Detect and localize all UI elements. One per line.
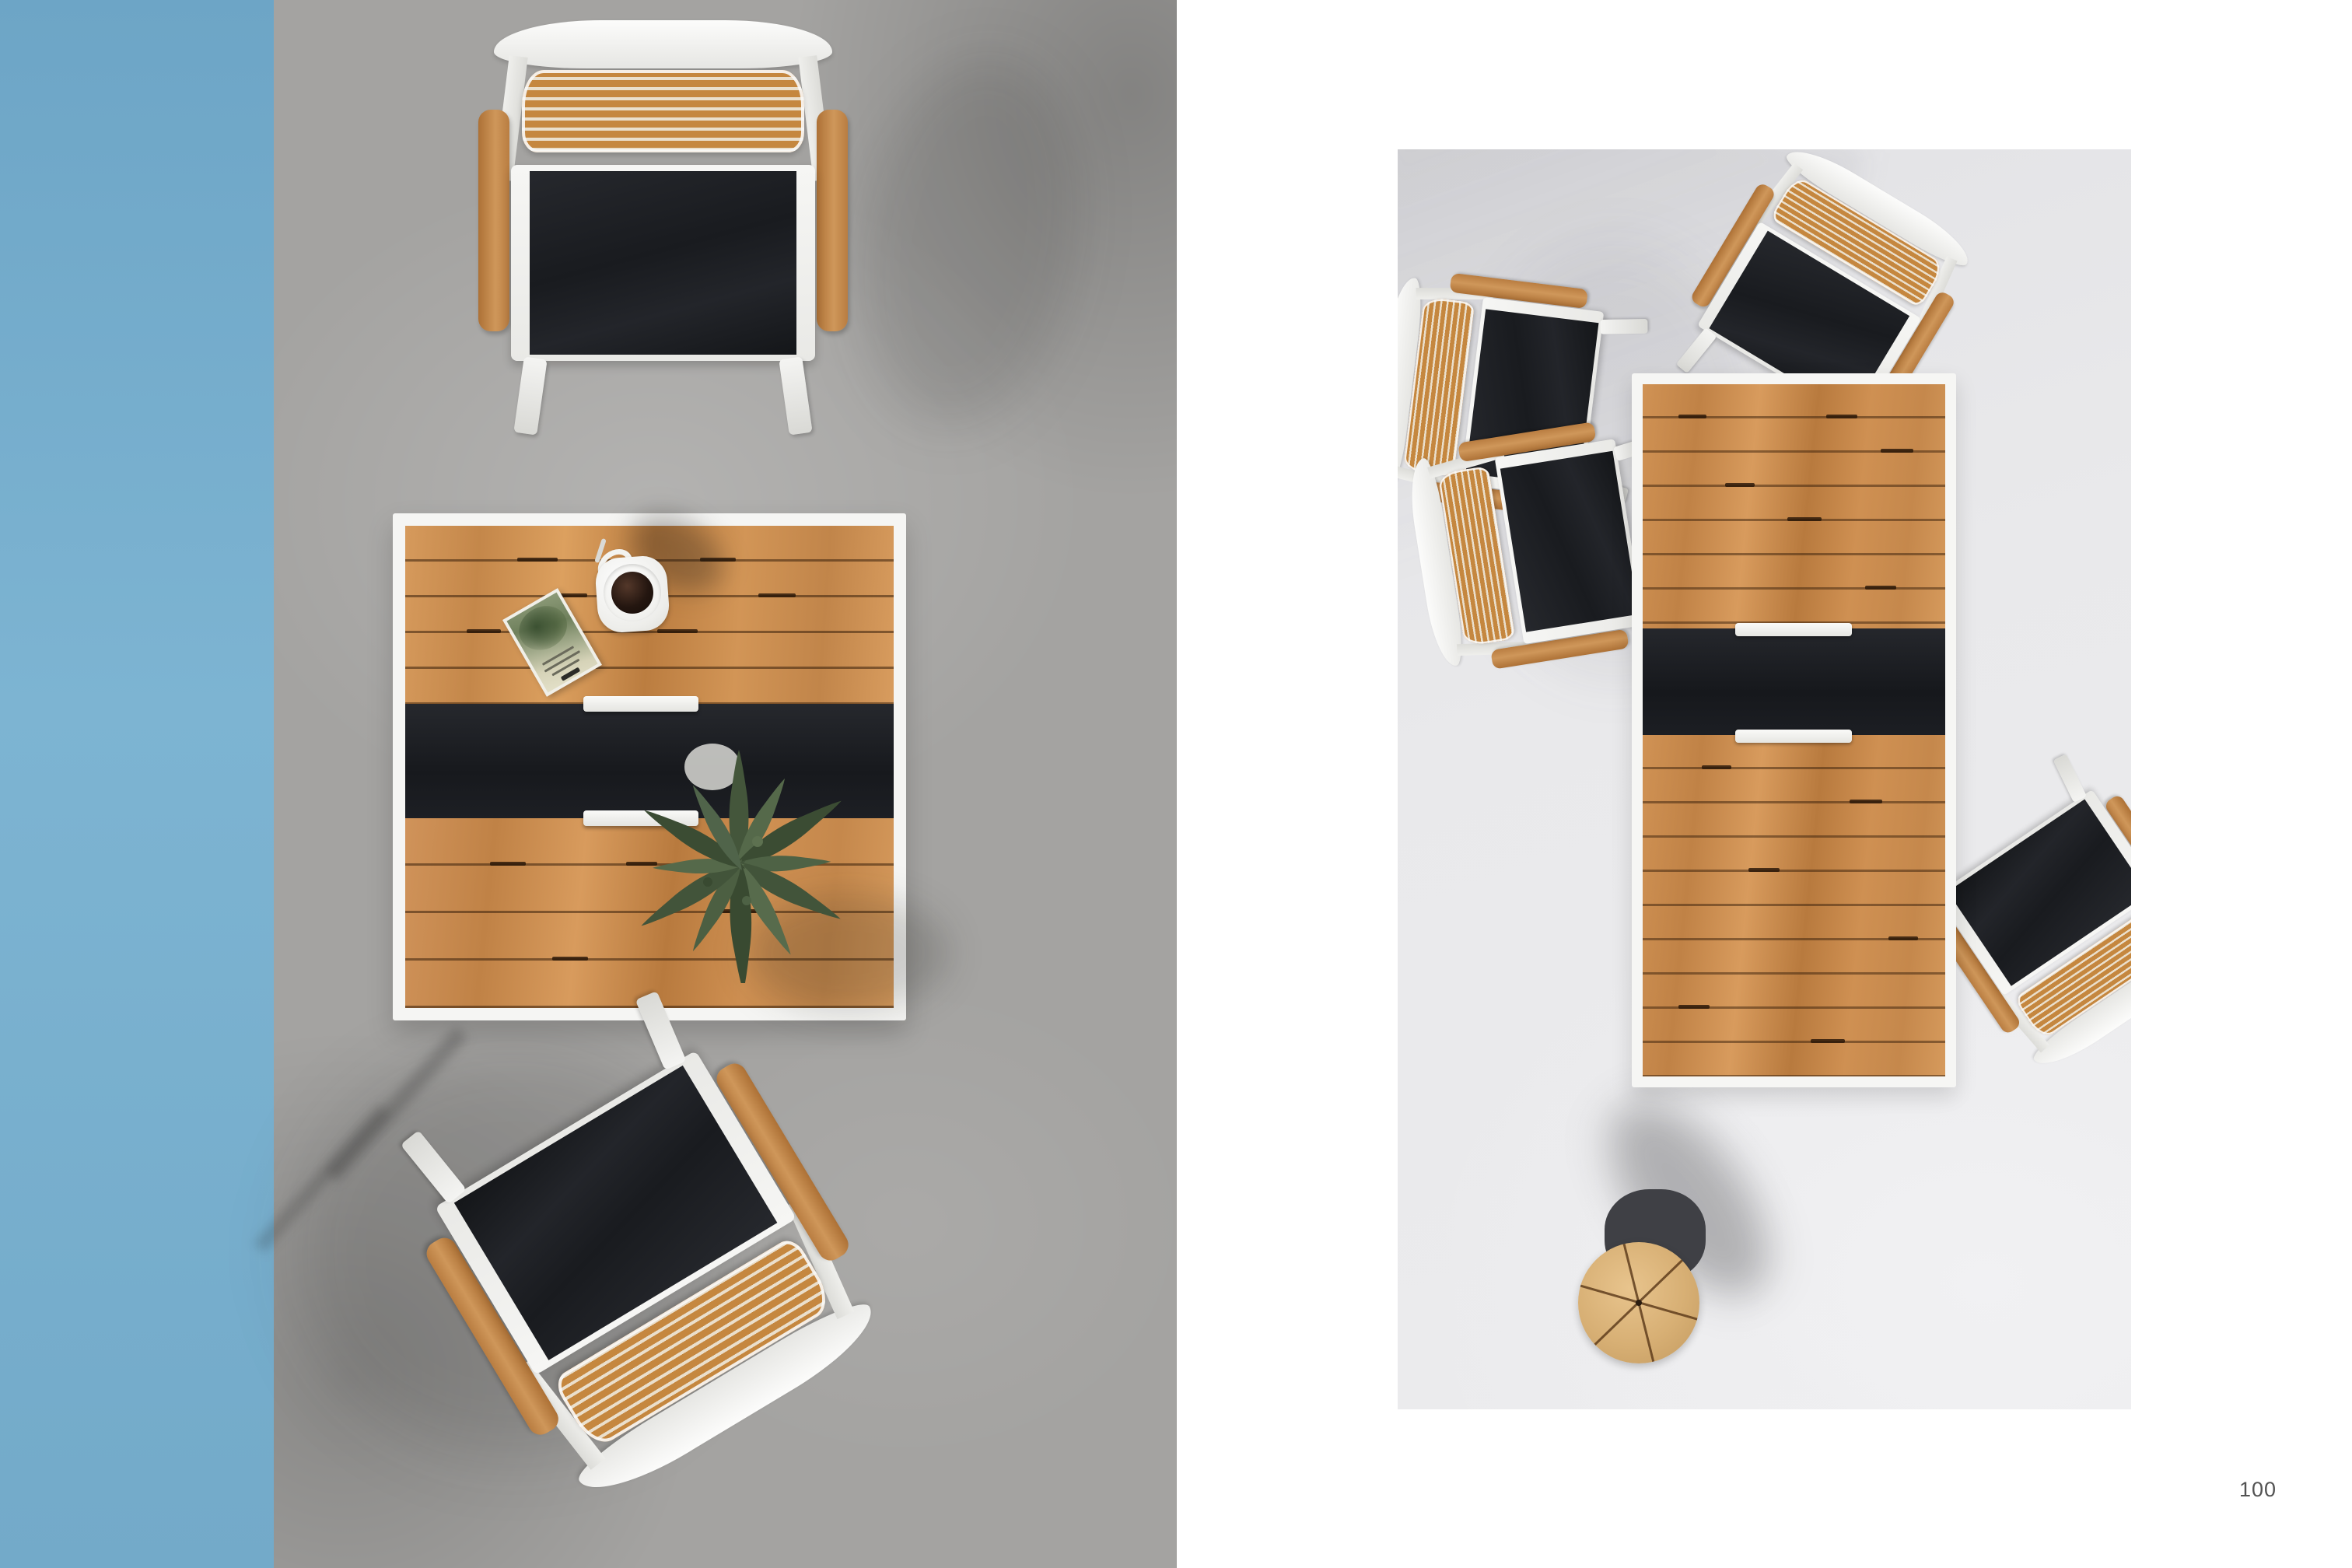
plank-gap-dash xyxy=(1748,868,1780,872)
plank-gap-dash xyxy=(758,593,796,597)
table-black-center-band xyxy=(1643,628,1945,735)
plank-gap-dash xyxy=(552,957,588,961)
plank-gap-dash xyxy=(1811,1039,1845,1043)
chair-leg-left xyxy=(635,991,687,1070)
plank-gap-dash xyxy=(1865,586,1896,590)
armchair-top xyxy=(478,20,848,436)
plank-gap-dash xyxy=(1702,765,1731,769)
chair-leg-right xyxy=(401,1130,467,1204)
table-handle-top xyxy=(1735,623,1852,636)
plank-gap-dash xyxy=(1850,800,1882,803)
catalog-page: 100 xyxy=(0,0,2352,1568)
table-teak-slats-top xyxy=(1643,384,1945,628)
chair-leg-left xyxy=(1676,327,1717,373)
plank-gap-dash xyxy=(1678,415,1706,418)
coffee-cup xyxy=(597,557,668,632)
chair-leg-right xyxy=(779,356,812,435)
chair-leg-left xyxy=(513,356,547,435)
rect-dining-table xyxy=(1632,373,1956,1087)
chair-top-rail xyxy=(494,20,832,68)
blue-wall-strip xyxy=(0,0,274,1568)
coffee xyxy=(611,572,653,614)
round-side-stool xyxy=(1578,1242,1699,1363)
chair-leg-right xyxy=(1600,319,1647,334)
chair-leg-left xyxy=(2053,754,2087,803)
table-handle-bottom xyxy=(1735,730,1852,743)
chair-backrest-slats xyxy=(522,70,804,152)
plank-gap-dash xyxy=(1787,517,1822,521)
plank-gap-dash xyxy=(1888,936,1918,940)
plank-gap-dash xyxy=(1881,449,1913,453)
plank-gap-dash xyxy=(1725,483,1755,487)
right-photo xyxy=(1398,149,2131,1409)
plank-gap-dash xyxy=(1678,1005,1710,1009)
fern-plant xyxy=(596,726,876,983)
chair-armrest-left xyxy=(478,110,509,331)
plank-gap-dash xyxy=(1826,415,1857,418)
stool-center-dot xyxy=(1636,1300,1642,1306)
table-handle-top xyxy=(583,696,698,712)
left-photo xyxy=(0,0,1177,1568)
plank-gap-dash xyxy=(517,558,558,562)
plank-gap-dash xyxy=(467,629,501,633)
chair-seat-sling xyxy=(530,171,796,355)
page-number: 100 xyxy=(2223,1478,2293,1502)
chair-armrest-right xyxy=(817,110,848,331)
table-teak-slats-bottom xyxy=(1643,735,1945,1076)
plank-gap-dash xyxy=(490,862,526,866)
